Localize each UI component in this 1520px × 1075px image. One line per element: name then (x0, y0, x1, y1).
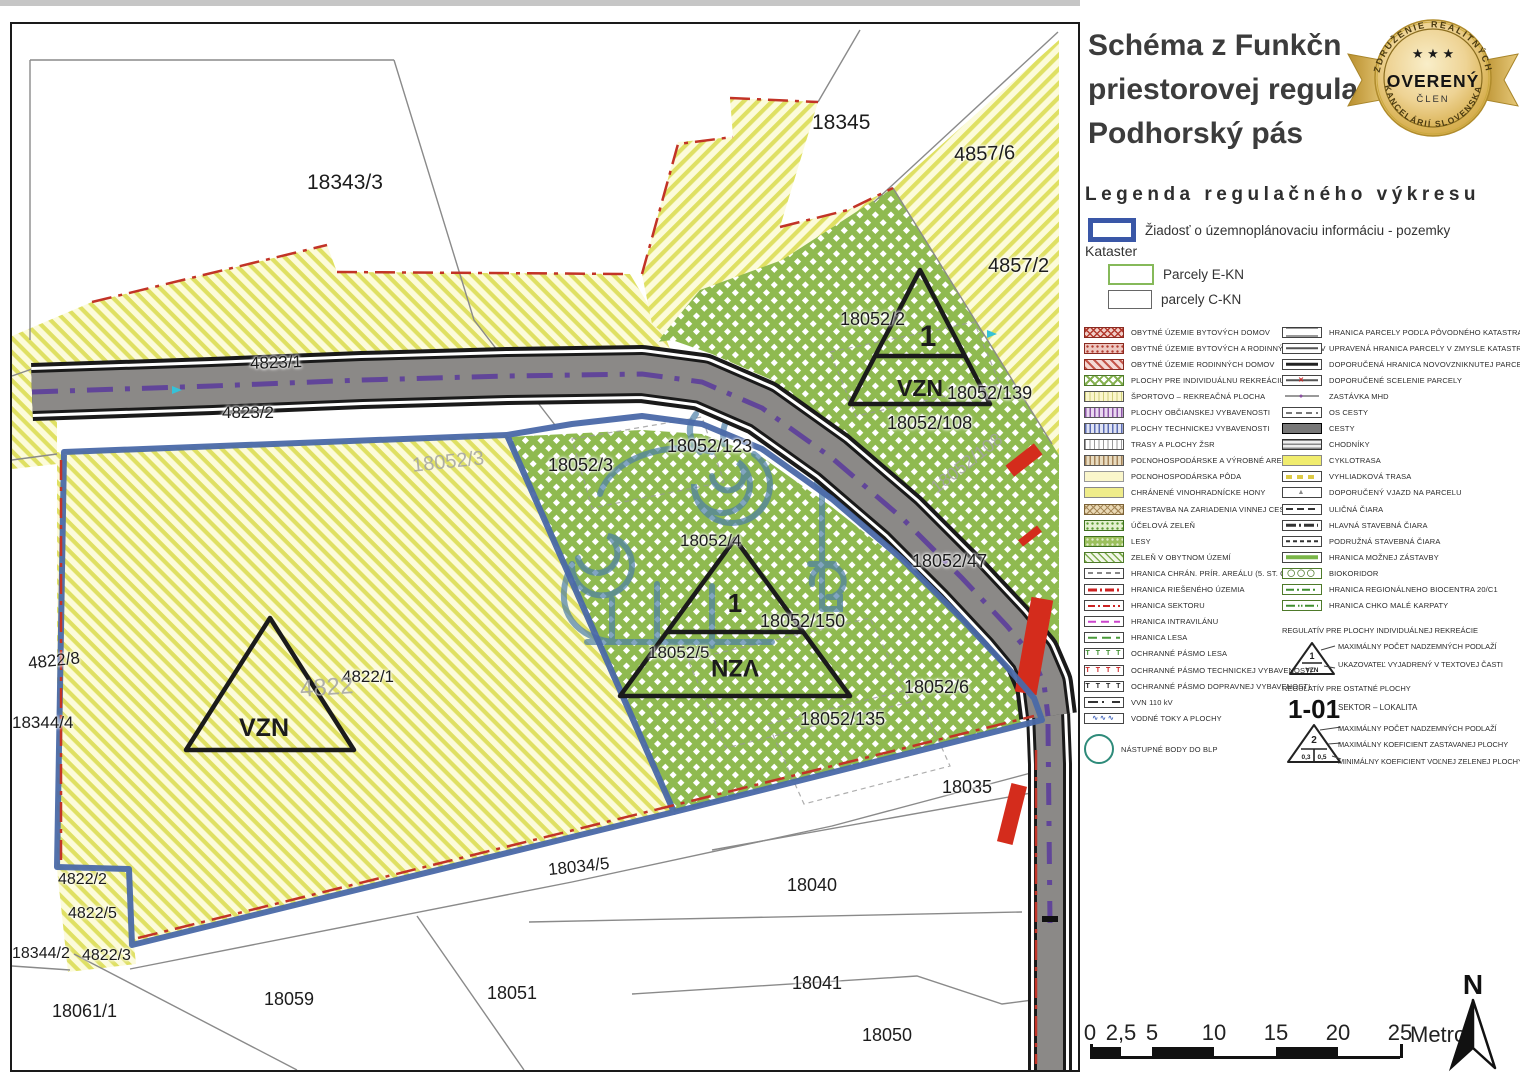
legend-swatch-icon: ◯◯◯ (1282, 568, 1322, 579)
legend-item-right-13: PODRUŽNÁ STAVEBNÁ ČIARA (1282, 533, 1520, 549)
vzn2-label: VZN (711, 654, 759, 681)
legend-swatch-icon: T T T T (1084, 681, 1124, 692)
legend-swatch-icon (1282, 423, 1322, 434)
legend-item-label: OCHRANNÉ PÁSMO LESA (1131, 649, 1227, 658)
legend-swatch-icon (1282, 520, 1322, 531)
legend-swatch-icon: ▲ (1282, 487, 1322, 498)
section1-note-1: UKAZOVATEĽ VYJADRENÝ V TEXTOVEJ ČASTI (1338, 660, 1503, 669)
badge-stars-icon: ★ ★ ★ (1412, 46, 1454, 61)
request-swatch (1088, 218, 1136, 242)
legend-swatch-icon (1084, 487, 1124, 498)
legend-swatch-icon (1084, 536, 1124, 547)
legend-item-label: DOPORUČENÉ SCELENIE PARCELY (1329, 376, 1462, 385)
legend-item-label: HRANICA REGIONÁLNEHO BIOCENTRA 20/C1 (1329, 585, 1498, 594)
parcel-number-label: 18040 (787, 876, 837, 894)
legend-swatch-icon (1084, 600, 1124, 611)
legend-glyph-icon: ✕ (1298, 377, 1306, 384)
legend-item-right-12: HLAVNÁ STAVEBNÁ ČIARA (1282, 517, 1520, 533)
scalebar-tick-label: 0 (1084, 1020, 1096, 1046)
legend-item-label: ÚČELOVÁ ZELEŇ (1131, 521, 1195, 530)
legend-swatch-icon (1084, 439, 1124, 450)
legend-swatch-icon: T T T T (1084, 648, 1124, 659)
parcel-number-label: 4857/6 (954, 143, 1016, 165)
legend-swatch-icon (1282, 584, 1322, 595)
legend-right-column: HRANICA PARCELY PODĽA PÔVODNÉHO KATASTRA… (1282, 324, 1520, 614)
legend-item-label: CESTY (1329, 424, 1355, 433)
legend-item-label: HRANICA CHKO MALÉ KARPATY (1329, 601, 1448, 610)
parcel-number-label: 18052/123 (667, 437, 752, 455)
parcel-number-label: 18344/2 (12, 946, 70, 962)
legend-swatch-icon (1282, 504, 1322, 515)
legend-glyph-icon: T T T T (1086, 650, 1123, 657)
legend-swatch-icon (1084, 375, 1124, 386)
parcel-number-label: 18052/5 (648, 644, 709, 661)
parcel-number-label: 4823/1 (250, 353, 303, 372)
legend-item-label: OBYTNÉ ÚZEMIE BYTOVÝCH DOMOV (1131, 328, 1270, 337)
scalebar-tick-label: 20 (1326, 1020, 1350, 1046)
legend-swatch-icon (1282, 600, 1322, 611)
scalebar-tick-label: 25 (1388, 1020, 1412, 1046)
ekn-swatch (1108, 264, 1154, 285)
parcel-number-label: 4823/2 (222, 404, 274, 421)
legend-item-label: VODNÉ TOKY A PLOCHY (1131, 714, 1222, 723)
legend-item-label: ZASTÁVKA MHD (1329, 392, 1389, 401)
legend-item-label: DOPORUČENÁ HRANICA NOVOVZNIKNUTEJ PARCEL… (1329, 360, 1520, 369)
legend-item-label: OCHRANNÉ PÁSMO TECHNICKEJ VYBAVENOSTI (1131, 666, 1312, 675)
legend-glyph-icon: ▲ (1298, 489, 1307, 496)
section2-note-1: MAXIMÁLNY KOEFICIENT ZASTAVANEJ PLOCHY (1338, 740, 1508, 749)
north-label: N (1463, 972, 1483, 1000)
section1-note-0: MAXIMÁLNY POČET NADZEMNÝCH PODLAŽÍ (1338, 642, 1497, 651)
legend-swatch-icon (1084, 734, 1114, 764)
section2-note-2: MINIMÁLNY KOEFICIENT VOĽNEJ ZELENEJ PLOC… (1338, 757, 1520, 766)
legend-item-label: HLAVNÁ STAVEBNÁ ČIARA (1329, 521, 1428, 530)
page: 1 VZN 1 VZN VZN 18343/3183454857/64857/2… (0, 0, 1520, 1075)
legend-item-right-15: ◯◯◯BIOKORIDOR (1282, 565, 1520, 581)
scalebar-tick-label: 2,5 (1106, 1020, 1137, 1046)
parcel-number-label: 18344/4 (12, 714, 73, 731)
legend-item-label: PRESTAVBA NA ZARIADENIA VINNEJ CESTY (1131, 505, 1295, 514)
parcel-number-label: 18052/2 (840, 310, 905, 328)
legend-swatch-icon (1084, 552, 1124, 563)
legend-item-label: VYHLIADKOVÁ TRASA (1329, 472, 1411, 481)
legend-item-right-8: CYKLOTRASA (1282, 453, 1520, 469)
section2-tri-br: 0,5 (1317, 754, 1326, 761)
legend-item-label: LESY (1131, 537, 1151, 546)
title-line1: Schéma z Funkčn (1088, 24, 1388, 68)
legend-heading: Legenda regulačného výkresu (1085, 184, 1480, 206)
section1-triangle: 1 VZN (1288, 640, 1336, 678)
parcel-number-label: 4822/3 (82, 948, 131, 964)
sector-code: 1-01 (1288, 694, 1340, 725)
request-label: Žiadosť o územnoplánovaciu informáciu - … (1145, 223, 1450, 238)
parcel-number-label: 18061/1 (52, 1002, 117, 1020)
legend-swatch-icon (1084, 697, 1124, 708)
parcel-number-label: 18035 (942, 778, 992, 796)
legend-swatch-icon (1282, 536, 1322, 547)
legend-swatch-icon (1084, 327, 1124, 338)
legend-item-right-5: OS CESTY (1282, 404, 1520, 420)
legend-swatch-icon (1084, 423, 1124, 434)
scalebar-segment (1152, 1047, 1214, 1056)
legend-item-label: TRASY A PLOCHY ŽSR (1131, 440, 1215, 449)
vzn1-storeys: 1 (920, 320, 937, 353)
section2-triangle: 2 0,3 0,5 (1286, 722, 1342, 766)
section2-note-0: MAXIMÁLNY POČET NADZEMNÝCH PODLAŽÍ (1338, 724, 1497, 733)
title-line2: priestorovej regula (1088, 68, 1388, 112)
scalebar-baseline (1090, 1056, 1400, 1059)
legend-swatch-icon (1084, 616, 1124, 627)
legend-request-row: Žiadosť o územnoplánovaciu informáciu - … (1088, 218, 1450, 242)
legend-item-right-4: ●ZASTÁVKA MHD (1282, 388, 1520, 404)
legend-ekn-row: Parcely E-KN (1108, 264, 1244, 285)
legend-swatch-icon (1084, 359, 1124, 370)
legend-item-label: BIOKORIDOR (1329, 569, 1378, 578)
parcel-number-label: 18052/150 (760, 612, 845, 630)
legend-item-label: HRANICA LESA (1131, 633, 1187, 642)
legend-glyph-icon: T T T T (1086, 667, 1123, 674)
legend-item-right-1: UPRAVENÁ HRANICA PARCELY V ZMYSLE KATAST… (1282, 340, 1520, 356)
legend-item-label: ŠPORTOVO – REKREAČNÁ PLOCHA (1131, 392, 1265, 401)
legend-swatch-icon: ∿∿∿ (1084, 713, 1124, 724)
legend-swatch-icon (1282, 359, 1322, 370)
zoning-map: 1 VZN 1 VZN VZN (12, 24, 1078, 1070)
legend-swatch-icon (1084, 520, 1124, 531)
legend-item-label: HRANICA RIEŠENÉHO ÚZEMIA (1131, 585, 1245, 594)
ckn-label: parcely C-KN (1161, 292, 1241, 307)
legend-swatch-icon (1282, 455, 1322, 466)
section2-heading: REGULATÍV PRE OSTATNÉ PLOCHY (1282, 684, 1411, 693)
parcel-number-label: 18052/6 (904, 678, 969, 696)
parcel-number-label: 4857/2 (988, 256, 1049, 276)
legend-swatch-icon: ✕ (1282, 375, 1322, 386)
sector-label: SEKTOR – LOKALITA (1338, 703, 1417, 712)
legend-item-label: UPRAVENÁ HRANICA PARCELY V ZMYSLE KATAST… (1329, 344, 1520, 353)
legend-item-label: CHRÁNENÉ VINOHRADNÍCKE HONY (1131, 488, 1265, 497)
legend-swatch-icon (1084, 471, 1124, 482)
road-tick (1042, 916, 1058, 922)
legend-item-label: ULIČNÁ ČIARA (1329, 505, 1383, 514)
legend-item-label: PLOCHY TECHNICKEJ VYBAVENOSTI (1131, 424, 1270, 433)
legend-swatch-icon (1282, 552, 1322, 563)
legend-swatch-icon (1084, 407, 1124, 418)
legend-glyph-icon: ● (1299, 393, 1305, 400)
section2-tri-bl: 0,3 (1301, 754, 1310, 761)
scalebar-end-tick (1090, 1044, 1093, 1058)
legend-item-label: PLOCHY OBČIANSKEJ VYBAVENOSTI (1131, 408, 1270, 417)
north-arrow-icon: N (1438, 972, 1508, 1072)
certified-member-badge: ZDRUŽENIE REALITNÝCH KANCELÁRIÍ SLOVENSK… (1346, 4, 1520, 144)
legend-item-label: VVN 110 kV (1131, 698, 1173, 707)
vzn1-label: VZN (897, 375, 943, 401)
parcel-number-label: 18051 (487, 984, 537, 1002)
legend-item-label: DOPORUČENÝ VJAZD NA PARCELU (1329, 488, 1462, 497)
parcel-number-label: 18041 (792, 974, 842, 992)
legend-item-right-14: HRANICA MOŽNEJ ZÁSTAVBY (1282, 549, 1520, 565)
legend-item-right-9: VYHLIADKOVÁ TRASA (1282, 469, 1520, 485)
legend-item-label: CHODNÍKY (1329, 440, 1370, 449)
scalebar-tick-label: 10 (1202, 1020, 1226, 1046)
parcel-number-label: 18343/3 (307, 172, 383, 193)
ckn-swatch (1108, 290, 1152, 309)
parcel-number-label: 18052/47 (912, 552, 987, 570)
parcel-number-label: 18059 (264, 990, 314, 1008)
legend-swatch-icon (1084, 504, 1124, 515)
parcel-number-label: 18345 (812, 112, 870, 133)
legend-swatch-icon (1282, 343, 1322, 354)
parcel-number-label: 18050 (862, 1026, 912, 1044)
legend-item-label: OS CESTY (1329, 408, 1368, 417)
kataster-heading: Kataster (1085, 243, 1137, 259)
legend-glyph-icon: T T T T (1086, 683, 1123, 690)
badge-sub: ČLEN (1416, 94, 1449, 105)
section1-heading: REGULATÍV PRE PLOCHY INDIVIDUÁLNEJ REKRE… (1282, 626, 1478, 635)
parcel-number-label: 4822/5 (68, 906, 117, 922)
parcel-number-label: 18052/139 (947, 384, 1032, 402)
legend-item-right-10: ▲DOPORUČENÝ VJAZD NA PARCELU (1282, 485, 1520, 501)
legend-item-right-2: DOPORUČENÁ HRANICA NOVOVZNIKNUTEJ PARCEL… (1282, 356, 1520, 372)
legend-item-right-3: ✕DOPORUČENÉ SCELENIE PARCELY (1282, 372, 1520, 388)
legend-swatch-icon (1282, 327, 1322, 338)
legend-swatch-icon (1084, 391, 1124, 402)
legend-item-right-11: ULIČNÁ ČIARA (1282, 501, 1520, 517)
legend-swatch-icon (1084, 455, 1124, 466)
section1-tri-bottom: VZN (1306, 667, 1319, 674)
parcel-number-label: 4822/2 (58, 872, 107, 888)
legend-swatch-icon (1084, 568, 1124, 579)
legend-item-right-6: CESTY (1282, 421, 1520, 437)
legend-ckn-row: parcely C-KN (1108, 290, 1241, 309)
title-line3: Podhorský pás (1088, 112, 1388, 156)
legend-item-right-17: HRANICA CHKO MALÉ KARPATY (1282, 598, 1520, 614)
legend-swatch-icon: T T T T (1084, 665, 1124, 676)
legend-item-label: PODRUŽNÁ STAVEBNÁ ČIARA (1329, 537, 1441, 546)
legend-swatch-icon (1084, 584, 1124, 595)
legend-item-label: HRANICA SEKTORU (1131, 601, 1205, 610)
parcel-number-label: 18052/135 (800, 710, 885, 728)
section1-tri-top: 1 (1309, 651, 1314, 661)
legend-swatch-icon (1282, 471, 1322, 482)
legend-item-right-16: HRANICA REGIONÁLNEHO BIOCENTRA 20/C1 (1282, 582, 1520, 598)
legend-item-label: CYKLOTRASA (1329, 456, 1381, 465)
parcel-number-label: 18052/3 (548, 456, 613, 474)
vzn3-label: VZN (239, 714, 289, 742)
legend-glyph-icon: ◯◯◯ (1287, 570, 1317, 577)
legend-item-label: PLOCHY PRE INDIVIDUÁLNU REKREÁCIU (1131, 376, 1285, 385)
map-frame: 1 VZN 1 VZN VZN 18343/3183454857/64857/2… (10, 22, 1080, 1072)
scalebar-tick-label: 5 (1146, 1020, 1158, 1046)
legend-item-right-7: CHODNÍKY (1282, 437, 1520, 453)
section2-tri-top: 2 (1311, 735, 1317, 746)
legend-item-label: NÁSTUPNÉ BODY DO BLP (1121, 745, 1218, 754)
parcel-number-label: 18052/108 (887, 414, 972, 432)
legend-swatch-icon: ● (1282, 391, 1322, 402)
parcel-number-watermark: 4822 (299, 674, 354, 702)
legend-swatch-icon (1084, 632, 1124, 643)
legend-glyph-icon: ∿∿∿ (1092, 715, 1116, 722)
legend-swatch-icon (1282, 439, 1322, 450)
legend-panel: Schéma z Funkčn priestorovej regula Podh… (1080, 0, 1520, 1075)
legend-item-label: OBYTNÉ ÚZEMIE RODINNÝCH DOMOV (1131, 360, 1275, 369)
parcel-number-label: 18052/4 (680, 532, 741, 549)
vzn2-storeys: 1 (728, 588, 742, 618)
scalebar-tick-label: 15 (1264, 1020, 1288, 1046)
scalebar-segment (1276, 1047, 1338, 1056)
legend-item-label: HRANICA INTRAVILÁNU (1131, 617, 1218, 626)
legend-item-label: HRANICA PARCELY PODĽA PÔVODNÉHO KATASTRA (1329, 328, 1520, 337)
legend-item-right-0: HRANICA PARCELY PODĽA PÔVODNÉHO KATASTRA (1282, 324, 1520, 340)
ekn-label: Parcely E-KN (1163, 267, 1244, 282)
legend-item-label: ZELEŇ V OBYTNOM ÚZEMÍ (1131, 553, 1231, 562)
scalebar-segment (1090, 1047, 1121, 1056)
scalebar-end-tick (1400, 1044, 1403, 1058)
legend-swatch-icon (1282, 407, 1322, 418)
legend-swatch-icon (1084, 343, 1124, 354)
legend-item-label: POĽNOHOSPODÁRSKA PÔDA (1131, 472, 1241, 481)
badge-main: OVERENÝ (1387, 70, 1480, 91)
legend-item-label: POĽNOHOSPODÁRSKE A VÝROBNÉ AREÁLY (1131, 456, 1296, 465)
legend-item-label: HRANICA MOŽNEJ ZÁSTAVBY (1329, 553, 1439, 562)
map-title: Schéma z Funkčn priestorovej regula Podh… (1088, 24, 1388, 156)
